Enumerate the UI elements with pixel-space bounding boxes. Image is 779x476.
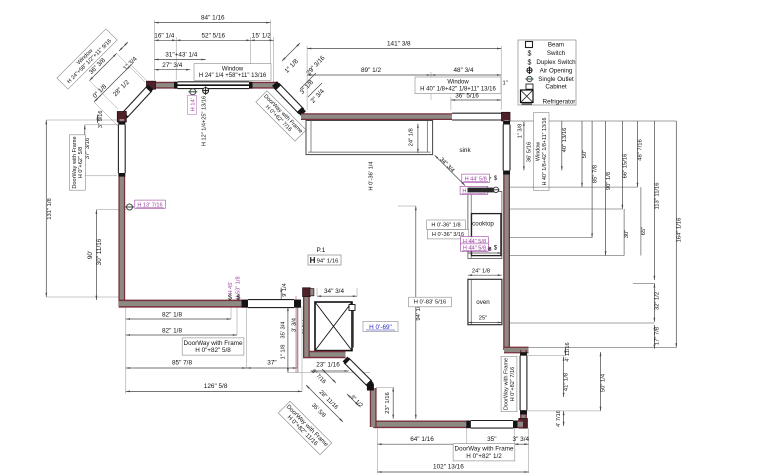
svg-text:36' 5/16: 36' 5/16 bbox=[527, 142, 533, 162]
svg-text:1" 3/8: 1" 3/8 bbox=[518, 124, 524, 138]
svg-text:27" 3/4: 27" 3/4 bbox=[162, 62, 182, 69]
svg-text:3' 3/4: 3' 3/4 bbox=[292, 317, 298, 332]
svg-text:4' 7/16: 4' 7/16 bbox=[556, 410, 562, 427]
svg-text:H: H bbox=[310, 256, 316, 265]
svg-text:84" 1/16: 84" 1/16 bbox=[201, 15, 225, 22]
svg-text:Refrigerator: Refrigerator bbox=[543, 99, 576, 106]
svg-text:DoorWay with Frame: DoorWay with Frame bbox=[184, 340, 243, 347]
svg-text:oven: oven bbox=[476, 299, 490, 306]
svg-text:35' 3/4: 35' 3/4 bbox=[281, 321, 287, 339]
svg-text:102" 13/16: 102" 13/16 bbox=[433, 464, 464, 471]
svg-text:$: $ bbox=[228, 295, 232, 302]
svg-text:17" 7/8: 17" 7/8 bbox=[654, 327, 660, 345]
svg-text:Window: Window bbox=[536, 142, 542, 161]
svg-text:1" 1/8: 1" 1/8 bbox=[281, 345, 287, 360]
svg-text:3" 3/4: 3" 3/4 bbox=[513, 436, 530, 443]
svg-text:sink: sink bbox=[459, 147, 471, 154]
svg-text:24" 1/8: 24" 1/8 bbox=[472, 269, 490, 275]
svg-text:H 45': H 45' bbox=[228, 282, 234, 295]
svg-text:113" 11/16: 113" 11/16 bbox=[654, 183, 660, 210]
svg-text:$: $ bbox=[528, 60, 532, 67]
svg-text:Cabinet: Cabinet bbox=[545, 84, 567, 91]
svg-text:H 0'-36' 1/4: H 0'-36' 1/4 bbox=[369, 161, 375, 191]
svg-text:DoorWay with Frame: DoorWay with Frame bbox=[503, 358, 509, 410]
svg-text:$: $ bbox=[528, 51, 532, 58]
svg-text:3" 9/16: 3" 9/16 bbox=[98, 111, 104, 129]
svg-text:41" 1/8: 41" 1/8 bbox=[563, 373, 569, 391]
svg-text:37": 37" bbox=[267, 360, 276, 367]
svg-text:cooktop: cooktop bbox=[472, 221, 494, 228]
svg-text:30": 30" bbox=[624, 230, 630, 239]
svg-text:4' 11/16: 4' 11/16 bbox=[565, 342, 571, 361]
svg-text:52" 5/16: 52" 5/16 bbox=[202, 33, 226, 40]
svg-text:15' 1/2: 15' 1/2 bbox=[252, 33, 271, 40]
svg-text:H 0'-36" 1/8: H 0'-36" 1/8 bbox=[431, 222, 460, 228]
svg-text:82" 1/8: 82" 1/8 bbox=[162, 311, 182, 318]
svg-text:25": 25" bbox=[479, 316, 488, 322]
svg-text:H 40" 1/8+42" 1/8+11" 13/16: H 40" 1/8+42" 1/8+11" 13/16 bbox=[542, 118, 548, 186]
svg-text:H 24" 1/4 +58"+11" 13/16: H 24" 1/4 +58"+11" 13/16 bbox=[199, 73, 267, 79]
svg-text:Air Opening: Air Opening bbox=[540, 68, 573, 75]
svg-text:Single Outlet: Single Outlet bbox=[538, 76, 574, 83]
svg-text:H 0'-83' 5/16: H 0'-83' 5/16 bbox=[414, 300, 447, 306]
svg-text:126" 5/8: 126" 5/8 bbox=[204, 383, 228, 390]
svg-text:$: $ bbox=[237, 295, 241, 302]
svg-text:24" 1/8: 24" 1/8 bbox=[409, 128, 415, 146]
svg-text:9' 1/4: 9' 1/4 bbox=[282, 283, 288, 297]
svg-text:23" 1/16: 23" 1/16 bbox=[385, 392, 391, 413]
svg-text:Duplex Switch: Duplex Switch bbox=[536, 59, 576, 66]
svg-text:16" 1/4: 16" 1/4 bbox=[154, 33, 174, 40]
svg-text:23" 1/16: 23" 1/16 bbox=[316, 362, 340, 369]
svg-text:131" 1/8: 131" 1/8 bbox=[47, 198, 53, 219]
svg-text:50" 1/4: 50" 1/4 bbox=[600, 373, 606, 392]
svg-text:H 0"+82" 1/2: H 0"+82" 1/2 bbox=[466, 453, 502, 460]
svg-text:30" 11/16: 30" 11/16 bbox=[96, 238, 103, 265]
svg-text:37" 3/16: 37" 3/16 bbox=[85, 138, 91, 159]
svg-text:50": 50" bbox=[582, 150, 588, 159]
svg-text:H 0"+82" 7/16: H 0"+82" 7/16 bbox=[510, 367, 516, 402]
svg-text:64" 1/16: 64" 1/16 bbox=[410, 436, 434, 443]
svg-text:Window: Window bbox=[447, 80, 469, 86]
svg-text:141" 3/8: 141" 3/8 bbox=[387, 41, 411, 48]
svg-text:H 0'-36" 3/16: H 0'-36" 3/16 bbox=[432, 232, 464, 238]
svg-text:DoorWay with Frame: DoorWay with Frame bbox=[455, 446, 514, 453]
svg-text:Switch: Switch bbox=[547, 50, 566, 57]
svg-text:H 14': H 14' bbox=[190, 98, 196, 111]
svg-text:32" 1/2: 32" 1/2 bbox=[654, 292, 660, 310]
svg-text:94" 1/16: 94" 1/16 bbox=[317, 259, 339, 265]
svg-text:82" 1/8: 82" 1/8 bbox=[162, 327, 182, 334]
svg-text:P.1: P.1 bbox=[317, 247, 326, 254]
svg-text:65": 65" bbox=[641, 227, 647, 236]
svg-text:85" 7/8: 85" 7/8 bbox=[172, 360, 192, 367]
svg-text:H 0"+62" 5/8: H 0"+62" 5/8 bbox=[78, 147, 84, 179]
svg-text:H 0"+82" 5/8: H 0"+82" 5/8 bbox=[195, 347, 231, 354]
svg-text:31"+43' 1/4: 31"+43' 1/4 bbox=[165, 52, 198, 59]
svg-text:1": 1" bbox=[503, 81, 508, 87]
svg-text:40" 13/16: 40" 13/16 bbox=[562, 128, 568, 153]
svg-text:35": 35" bbox=[487, 436, 496, 443]
svg-text:34" 3/4: 34" 3/4 bbox=[324, 288, 344, 295]
svg-text:Window: Window bbox=[222, 66, 244, 72]
svg-text:48" 7/16: 48" 7/16 bbox=[638, 139, 644, 160]
svg-text:36" 5/16: 36" 5/16 bbox=[455, 93, 479, 100]
svg-text:Beam: Beam bbox=[548, 42, 564, 49]
svg-text:164" 1/16: 164" 1/16 bbox=[676, 218, 682, 243]
svg-text:85" 7/8: 85" 7/8 bbox=[592, 165, 598, 183]
svg-text:66" 15/16: 66" 15/16 bbox=[622, 154, 628, 179]
svg-text:89" 1/2: 89" 1/2 bbox=[361, 67, 381, 74]
svg-text:DoorWay with Frame: DoorWay with Frame bbox=[72, 136, 78, 188]
svg-text:H 12" 1/4+25" 13/16: H 12" 1/4+25" 13/16 bbox=[202, 96, 208, 146]
svg-text:48" 3/4: 48" 3/4 bbox=[453, 67, 473, 74]
svg-text:90': 90' bbox=[87, 251, 94, 259]
svg-text:90" 1/8: 90" 1/8 bbox=[606, 172, 612, 190]
